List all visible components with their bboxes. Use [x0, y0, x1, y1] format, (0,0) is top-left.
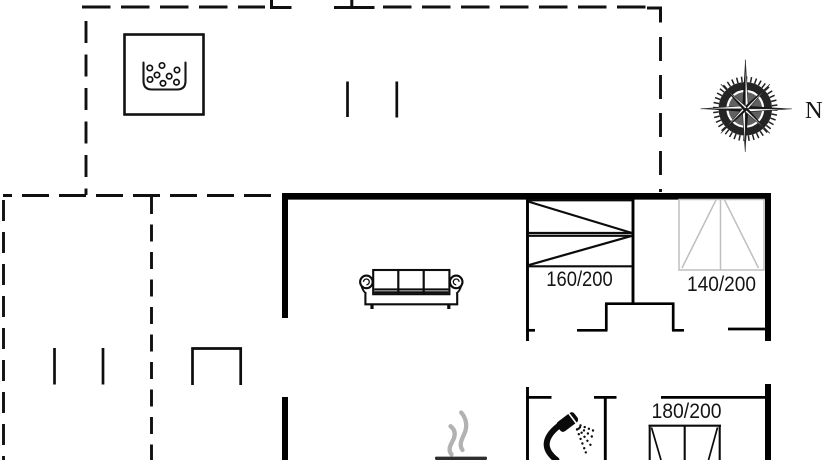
svg-text:160/200: 160/200	[546, 267, 613, 291]
svg-text:180/200: 180/200	[652, 399, 722, 423]
svg-text:N: N	[805, 97, 823, 124]
svg-text:140/200: 140/200	[687, 272, 756, 296]
